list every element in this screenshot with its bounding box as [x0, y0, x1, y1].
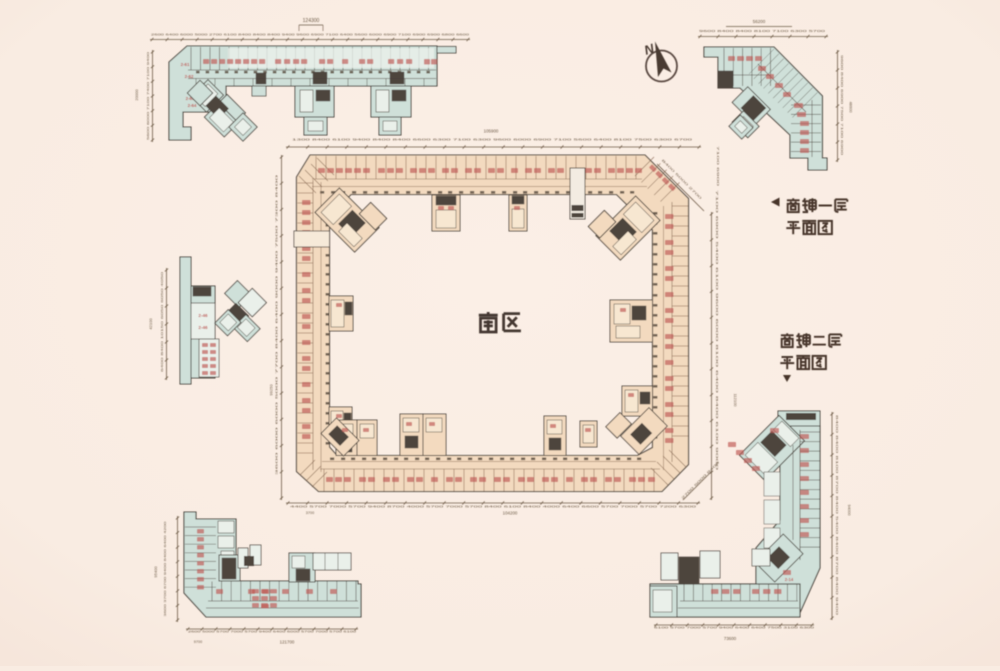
svg-text:20000: 20000	[134, 89, 139, 101]
svg-text:9600 8400 8400 8100 7100 6300: 9600 8400 8400 8100 7100 6300 5700	[699, 29, 826, 33]
svg-text:6400 8400 10150 6050 6050 4050: 6400 8400 10150 6050 6050 4050	[160, 271, 164, 372]
svg-text:4400 5700 7000 5700 9400 8700: 4400 5700 7000 5700 9400 8700 4000 5700 …	[290, 505, 697, 509]
svg-text:94000: 94000	[847, 504, 852, 516]
svg-text:2-62: 2-62	[185, 74, 194, 79]
svg-text:7100 6900 5400 6100 9600 6000: 7100 6900 5400 6100 9600 6000 8100 6400 …	[715, 190, 719, 471]
svg-text:73600: 73600	[724, 636, 737, 641]
svg-text:5600 6000 7100 7400 7100 9400: 5600 6000 7100 7400 7100 9400	[146, 51, 150, 140]
svg-text:105900: 105900	[484, 129, 499, 134]
svg-text:2-46: 2-46	[198, 313, 208, 318]
svg-text:56200: 56200	[753, 19, 766, 24]
svg-text:2-61: 2-61	[181, 62, 190, 67]
svg-text:124300: 124300	[303, 18, 320, 24]
svg-text:2-46: 2-46	[198, 325, 208, 330]
svg-text:9700: 9700	[194, 640, 202, 644]
svg-text:99250: 99250	[269, 384, 274, 396]
svg-text:8400 8400 8100 8700 8400 5400: 8400 8400 8100 8700 8400 5400 8400 8700 …	[835, 415, 839, 616]
svg-text:2600 6400 6000 5000 2700 6100: 2600 6400 6000 5000 2700 6100 8400 8400 …	[151, 33, 470, 37]
svg-text:121700: 121700	[280, 640, 295, 645]
svg-text:104200: 104200	[503, 511, 518, 516]
svg-text:7100 6900: 7100 6900	[716, 146, 720, 187]
svg-text:42100: 42100	[148, 318, 153, 330]
svg-text:3600 3700 6700 9400 8400 6400: 3600 3700 6700 9400 8400 6400 4200	[163, 521, 167, 617]
svg-text:3700: 3700	[306, 511, 314, 515]
svg-text:2-64: 2-64	[188, 103, 197, 108]
svg-text:48600: 48600	[849, 101, 854, 113]
svg-text:9600 8400 6900 7500 7100 6900: 9600 8400 6900 7500 7100 6900	[840, 55, 844, 156]
svg-text:2-14: 2-14	[785, 577, 794, 582]
svg-text:3600 6000 6000 5000 7700 8400: 3600 6000 6000 5000 7700 8400 6400 9000 …	[275, 174, 279, 475]
svg-text:1300 8400 6100 9400 8400 8400: 1300 8400 6100 9400 8400 8400 6600 6300 …	[292, 138, 693, 142]
svg-text:95400: 95400	[153, 566, 158, 578]
svg-text:112100: 112100	[733, 393, 738, 407]
svg-text:2600 5000 5700 7000 5700 9400: 2600 5000 5700 7000 5700 9400 6400 6000 …	[188, 630, 357, 634]
svg-text:6100 5700 7000 5700 9400 6400: 6100 5700 7000 5700 9400 6400 6400 7500 …	[654, 626, 815, 630]
